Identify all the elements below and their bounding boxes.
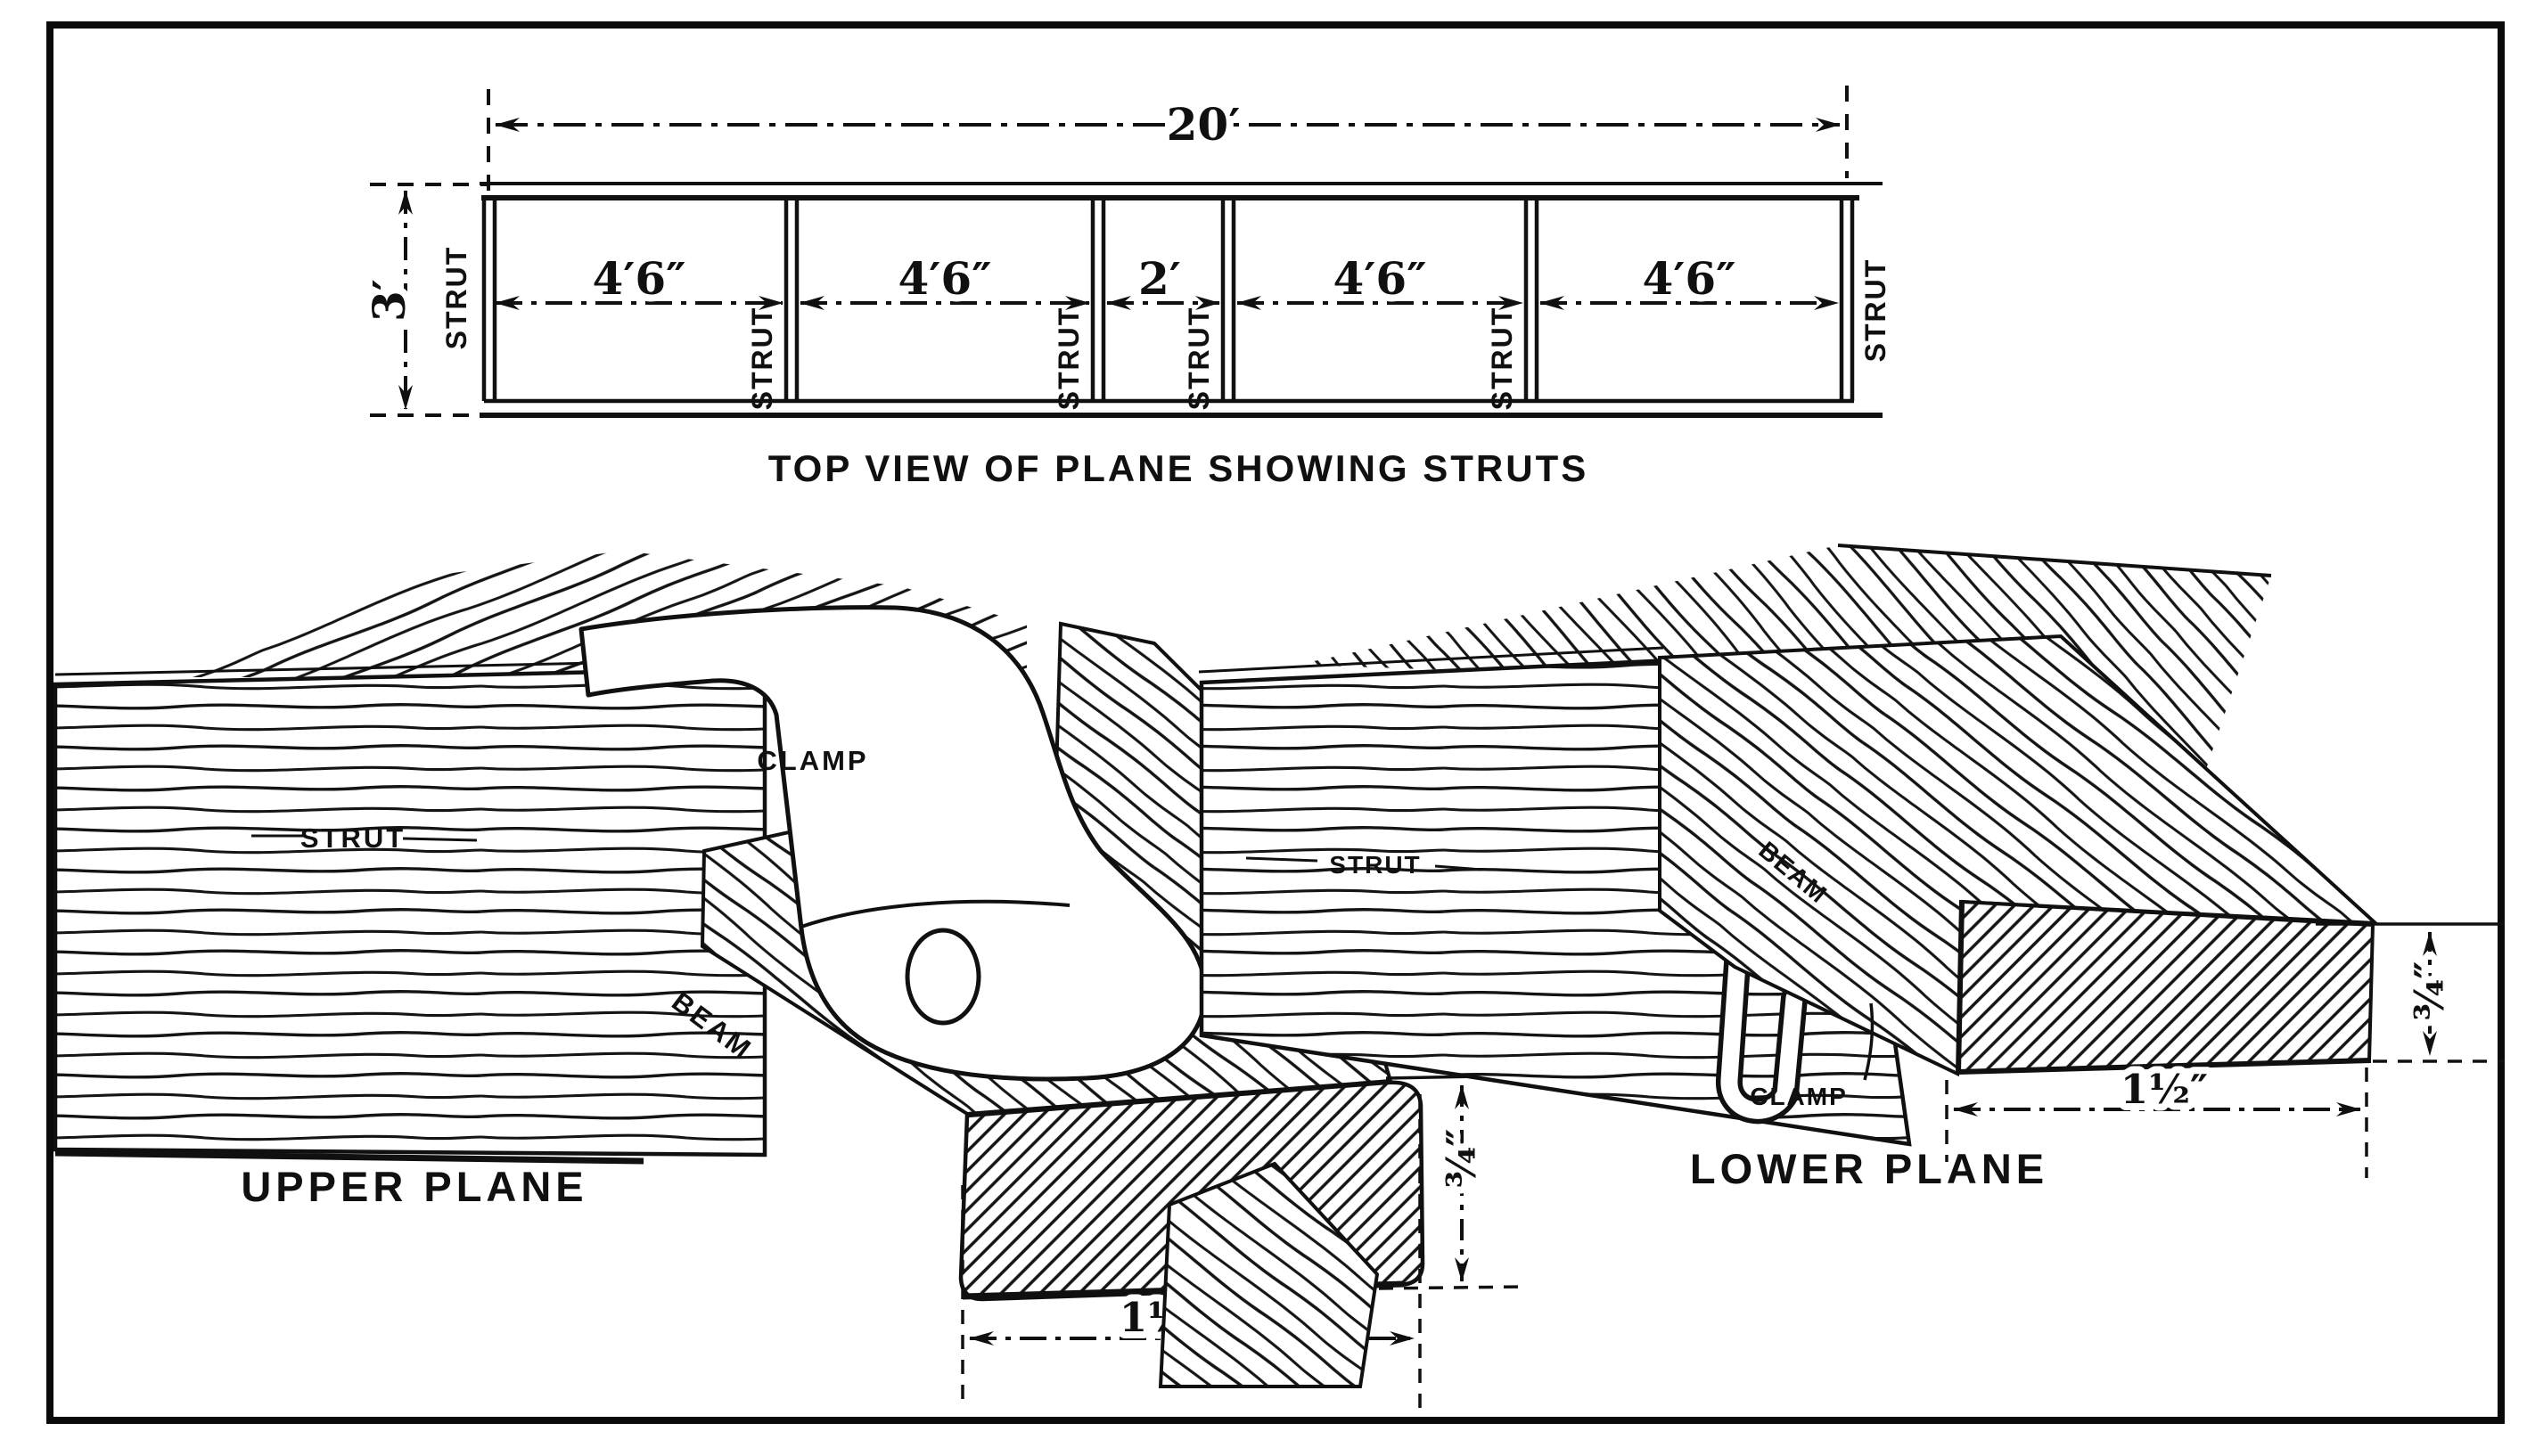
strut-leader-right <box>403 838 477 840</box>
dim-bay-4: 4′6″ <box>1333 252 1426 305</box>
strut-body <box>55 668 765 1155</box>
lower-strut-label: STRUT <box>1329 851 1421 879</box>
upper-clamp-label: CLAMP <box>757 745 868 776</box>
strut-label-4: STRUT <box>1183 307 1215 411</box>
lower-plane-caption: LOWER PLANE <box>1690 1145 2048 1192</box>
dim-bay-1: 4′6″ <box>592 252 685 305</box>
dim-bay-5: 4′6″ <box>1642 252 1735 305</box>
strut-label-end-left: STRUT <box>440 246 472 350</box>
upper-strut-label: STRUT <box>300 822 406 854</box>
strut-label-2: STRUT <box>746 307 778 411</box>
strut-label-5: STRUT <box>1486 307 1518 411</box>
strut-label-3: STRUT <box>1053 307 1085 411</box>
technical-drawing: 20′ 3′ 4′6″ 4′6″ 2′ 4′6″ 4′6″ STRUT STRU… <box>0 0 2535 1456</box>
top-view-caption: TOP VIEW OF PLANE SHOWING STRUTS <box>768 447 1589 489</box>
beam-end-section <box>1959 902 2373 1072</box>
dim-chord-depth: 3′ <box>363 279 415 322</box>
lower-clamp-label: CLAMP <box>1750 1083 1848 1110</box>
dim-bay-3: 2′ <box>1138 252 1181 305</box>
lower-plane-detail: STRUT BEAM CLAMP ¾″ 1½″ LOWER PLANE <box>1161 545 2505 1386</box>
lower-beam-width: 1½″ <box>2121 1066 2208 1113</box>
scanned-figure-page: 20′ 3′ 4′6″ 4′6″ 2′ 4′6″ 4′6″ STRUT STRU… <box>0 0 2535 1456</box>
upper-beam-depth: ¾″ <box>1438 1128 1485 1188</box>
strut-label-end-right: STRUT <box>1859 258 1891 363</box>
lower-beam-depth: ¾″ <box>2406 961 2453 1020</box>
dim-overall-span: 20′ <box>1167 98 1241 151</box>
bolt-hole <box>907 930 979 1023</box>
dim-bay-2: 4′6″ <box>898 252 991 305</box>
top-view: 20′ 3′ 4′6″ 4′6″ 2′ 4′6″ 4′6″ STRUT STRU… <box>363 86 1891 489</box>
upper-plane-caption: UPPER PLANE <box>241 1163 587 1210</box>
